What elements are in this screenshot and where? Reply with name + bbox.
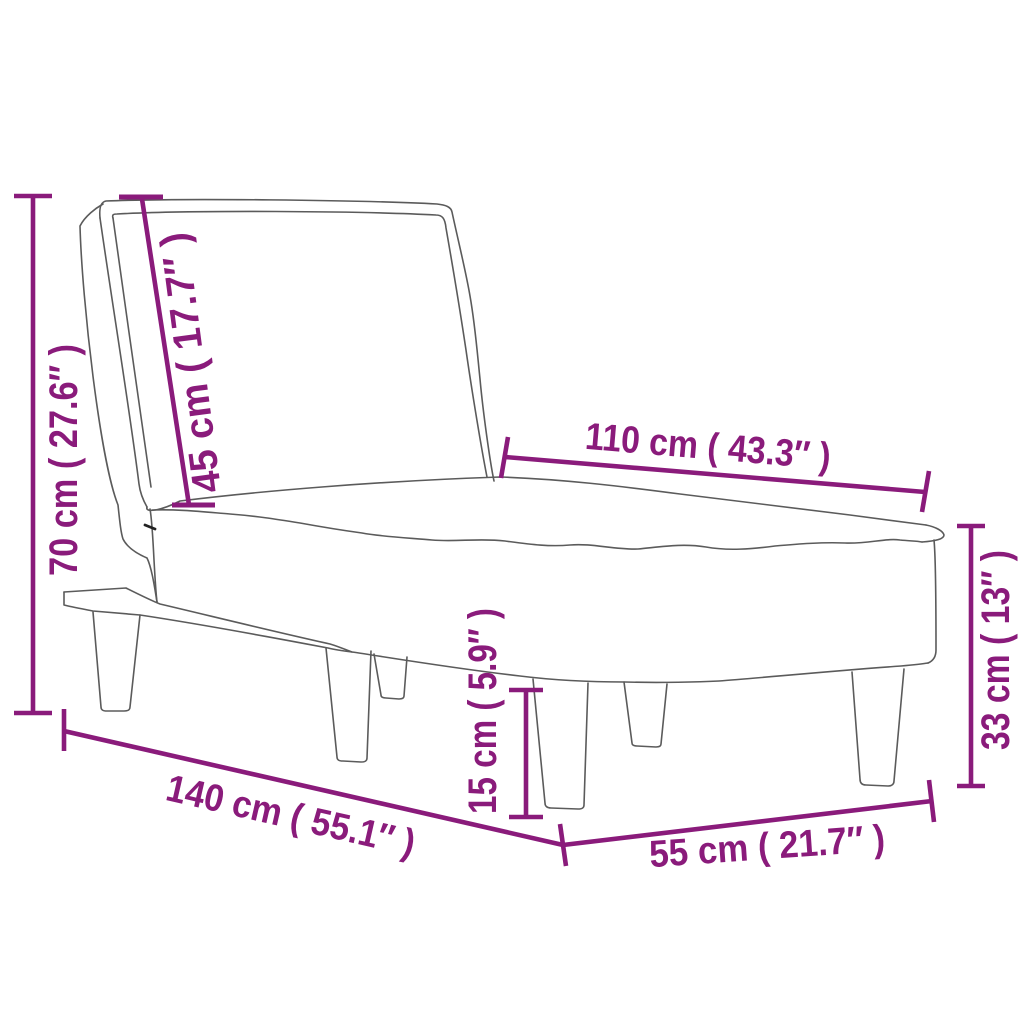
svg-text:15 cm ( 5.9″ ): 15 cm ( 5.9″ )	[461, 608, 505, 814]
svg-text:33 cm ( 13″ ): 33 cm ( 13″ )	[974, 550, 1018, 750]
svg-text:70 cm ( 27.6″ ): 70 cm ( 27.6″ )	[42, 344, 86, 576]
